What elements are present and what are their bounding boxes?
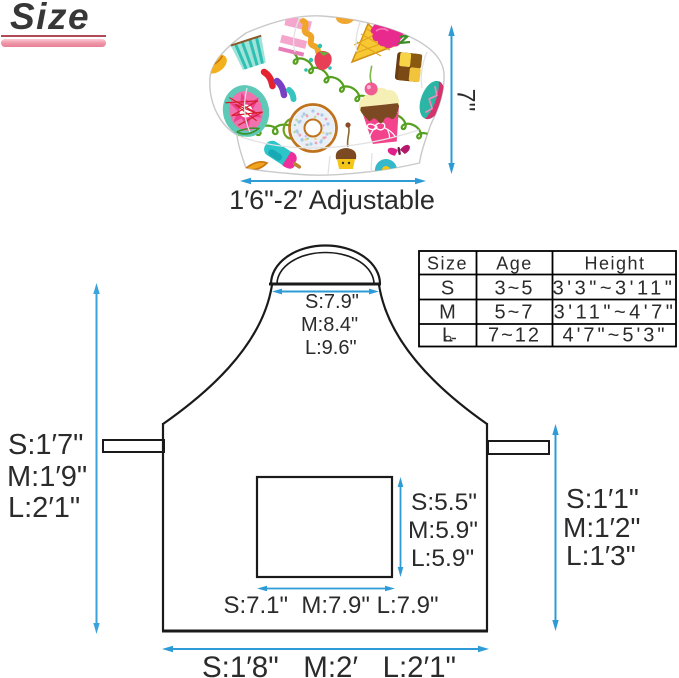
svg-text:M:5.9": M:5.9" [408,517,478,544]
svg-text:M:8.4": M:8.4" [301,314,358,336]
svg-text:5~7: 5~7 [495,302,535,324]
svg-text:S: S [441,278,454,300]
svg-text:7~12: 7~12 [488,325,541,347]
svg-text:S:1′8" M:2′ L:2′1": S:1′8" M:2′ L:2′1" [202,651,456,678]
svg-text:S:5.5": S:5.5" [411,489,477,516]
svg-text:7": 7" [451,89,479,112]
svg-text:L:9.6": L:9.6" [305,337,357,359]
svg-text:Size: Size [427,254,468,274]
svg-text:1′6"-2′ Adjustable: 1′6"-2′ Adjustable [229,185,435,215]
svg-text:L:5.9": L:5.9" [411,545,474,572]
svg-text:Age: Age [496,254,533,274]
svg-text:L:1′3": L:1′3" [566,540,636,571]
svg-text:S:7.1" M:7.9" L:7.9": S:7.1" M:7.9" L:7.9" [223,592,438,619]
svg-text:3'11"~4'7": 3'11"~4'7" [554,302,677,324]
svg-text:L:2′1": L:2′1" [8,492,80,524]
svg-text:S:1′1": S:1′1" [566,483,639,514]
svg-text:S:7.9": S:7.9" [305,291,359,313]
svg-text:L: L [442,325,453,347]
svg-text:Height: Height [584,254,645,274]
svg-text:3~5: 3~5 [495,278,535,300]
svg-text:M: M [439,302,456,324]
svg-text:S:1′7": S:1′7" [8,429,83,461]
svg-text:M:1′9": M:1′9" [7,461,87,493]
svg-text:M:1′2": M:1′2" [563,512,640,543]
svg-text:4'7"~5'3": 4'7"~5'3" [562,325,667,347]
svg-text:3'3"~3'11": 3'3"~3'11" [553,278,676,300]
